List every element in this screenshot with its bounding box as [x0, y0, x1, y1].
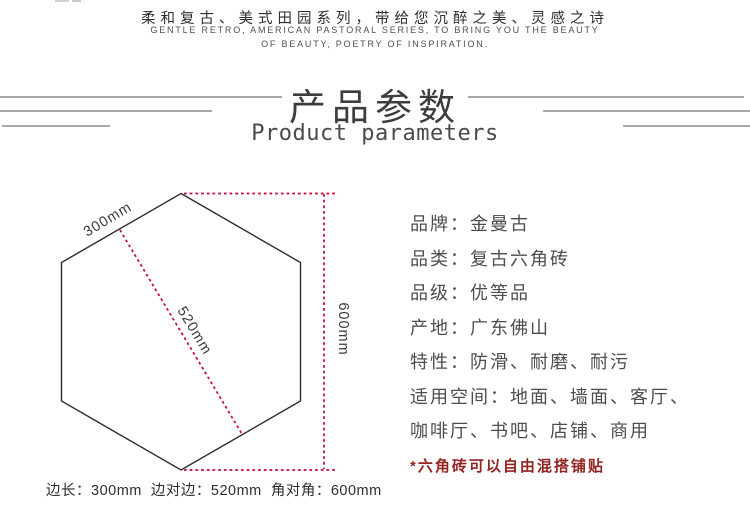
- dimension-line-edge-to-edge: [120, 230, 242, 434]
- tagline-english-line1: GENTLE RETRO, AMERICAN PASTORAL SERIES, …: [0, 25, 750, 35]
- side-length-label: 300mm: [81, 199, 135, 240]
- spec-features: 特性：防滑、耐磨、耐污: [410, 345, 740, 380]
- cropped-text-artifact: [55, 0, 69, 2]
- spec-grade: 品级：优等品: [410, 276, 740, 311]
- product-parameters-section: 柔和复古、美式田园系列，带给您沉醉之美、灵感之诗 GENTLE RETRO, A…: [0, 0, 750, 510]
- dimension-caption: 边长：300mm 边对边：520mm 角对角：600mm: [46, 479, 382, 500]
- section-title-english: Product parameters: [0, 121, 750, 146]
- spec-category: 品类：复古六角砖: [410, 242, 740, 277]
- edge-to-edge-label: 520mm: [174, 304, 215, 358]
- mix-match-note: *六角砖可以自由混搭铺贴: [410, 455, 740, 479]
- cropped-text-artifact: [72, 0, 81, 2]
- spec-list: 品牌：金曼古 品类：复古六角砖 品级：优等品 产地：广东佛山 特性：防滑、耐磨、…: [410, 207, 740, 479]
- tagline-english-line2: OF BEAUTY, POETRY OF INSPIRATION.: [0, 39, 750, 49]
- spec-applicable-spaces-line1: 适用空间：地面、墙面、客厅、: [410, 380, 740, 415]
- corner-to-corner-label: 600mm: [335, 302, 351, 355]
- spec-origin: 产地：广东佛山: [410, 311, 740, 346]
- spec-brand: 品牌：金曼古: [410, 207, 740, 242]
- spec-applicable-spaces-line2: 咖啡厅、书吧、店铺、商用: [410, 414, 740, 449]
- hexagon-dimension-diagram: 300mm 520mm 600mm: [0, 170, 400, 510]
